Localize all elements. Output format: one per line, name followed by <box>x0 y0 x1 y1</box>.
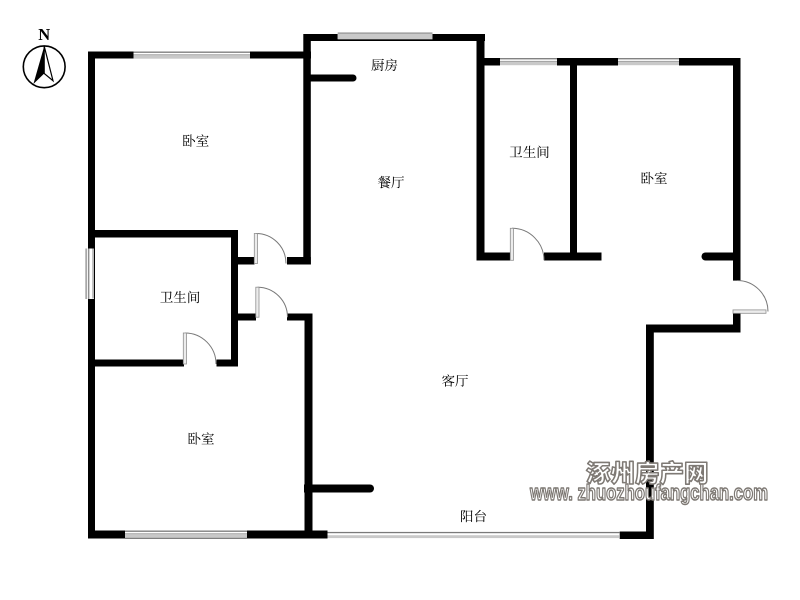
svg-text:www. zhuozhoufangchan.com: www. zhuozhoufangchan.com <box>529 480 768 505</box>
svg-text:N: N <box>38 25 50 44</box>
